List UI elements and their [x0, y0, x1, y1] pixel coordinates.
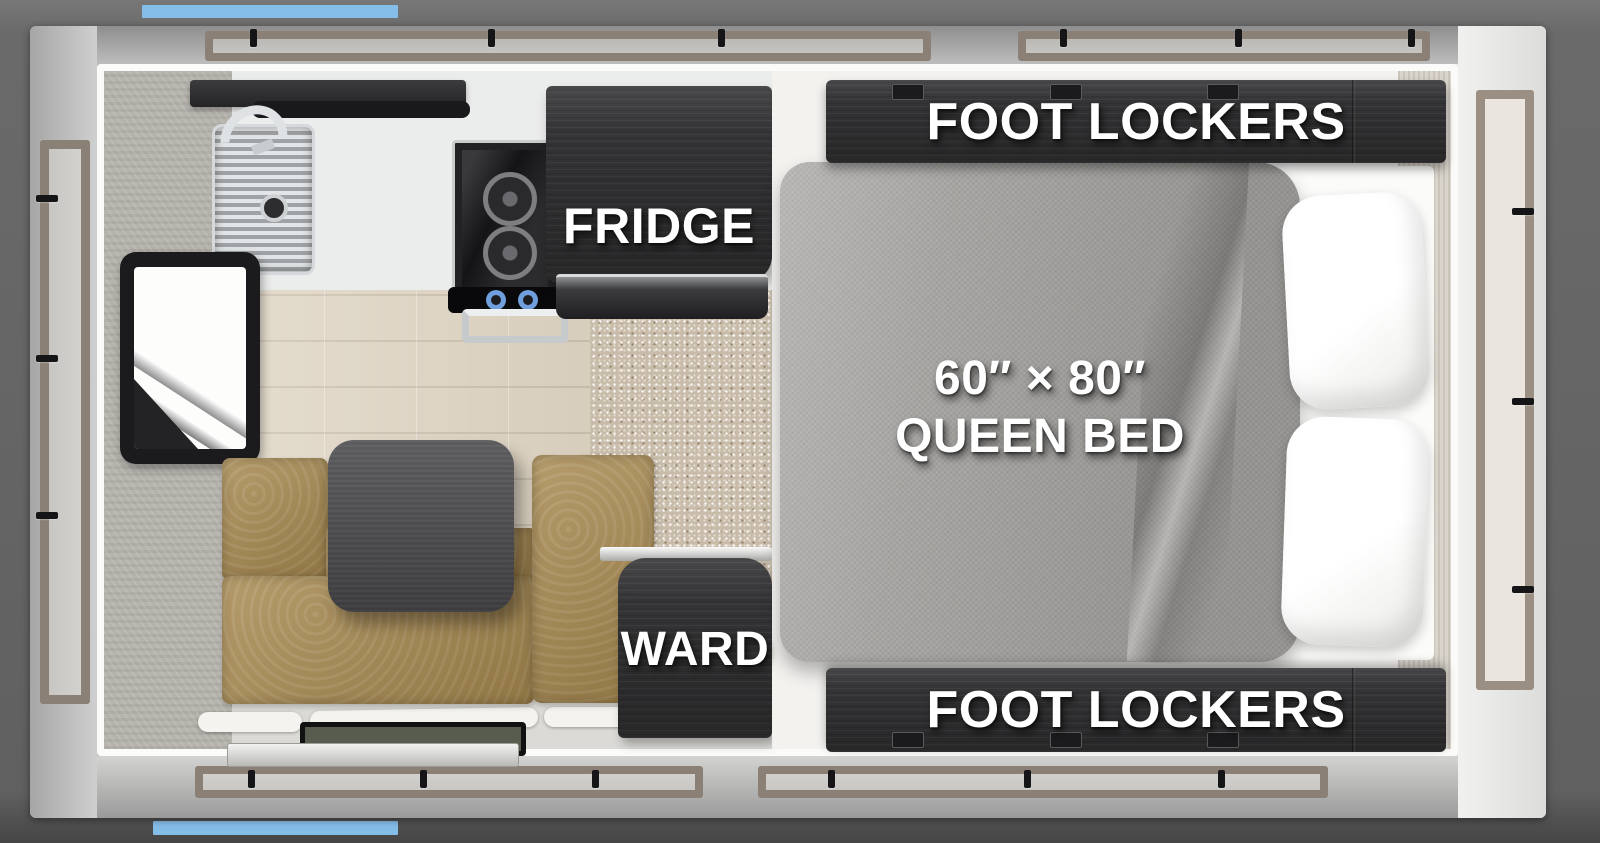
window-clip [420, 770, 427, 788]
window-clip [1512, 586, 1534, 593]
window-clip [1235, 29, 1242, 47]
oven-handle [462, 309, 568, 343]
window-clip [828, 770, 835, 788]
bed-name-text: QUEEN BED [895, 408, 1185, 466]
bed-size-text: 60″ × 80″ [934, 350, 1146, 408]
floorplan-canvas: FOOT LOCKERS FOOT LOCKERS FRIDGE WARD 60… [0, 0, 1600, 843]
oven-knob [518, 290, 538, 310]
window-clip [248, 770, 255, 788]
fridge-text: FRIDGE [563, 197, 755, 255]
window-clip [1218, 770, 1225, 788]
burner [483, 226, 537, 280]
window-clip [36, 355, 58, 362]
pillow [1280, 190, 1431, 411]
window-clip [1512, 208, 1534, 215]
foot-lockers-bottom-label: FOOT LOCKERS [826, 668, 1446, 752]
window-clip [250, 29, 257, 47]
window-clip [488, 29, 495, 47]
entry-step [227, 743, 519, 767]
oven-knob [486, 290, 506, 310]
bottom-window-frame-left [195, 766, 703, 798]
sink-drain [260, 194, 288, 222]
window-clip [1512, 398, 1534, 405]
window-clip [1060, 29, 1067, 47]
top-window-frame-right [1018, 31, 1430, 61]
tv-corner-shadow [134, 379, 198, 449]
top-window-frame-left [205, 31, 931, 61]
fridge-label: FRIDGE [546, 196, 772, 256]
ward-label: WARD [612, 620, 778, 678]
dinette-table [328, 440, 514, 612]
floor-mat [198, 712, 302, 732]
accent-bar-bottom [153, 821, 398, 835]
right-window-frame [1476, 90, 1534, 690]
pillow [1280, 416, 1430, 649]
window-clip [1408, 29, 1415, 47]
window-clip [592, 770, 599, 788]
fridge-drawer [556, 274, 768, 319]
accent-bar-top [142, 5, 398, 18]
foot-lockers-top-text: FOOT LOCKERS [926, 92, 1345, 152]
foot-lockers-bottom-text: FOOT LOCKERS [926, 680, 1345, 740]
dinette-bench-back [222, 458, 328, 578]
tv-screen [134, 267, 246, 449]
window-clip [1024, 770, 1031, 788]
bed-label: 60″ × 80″ QUEEN BED [880, 350, 1200, 466]
burner [483, 172, 537, 226]
window-clip [36, 195, 58, 202]
bottom-window-frame-right [758, 766, 1328, 798]
range-hood [252, 101, 470, 118]
window-clip [718, 29, 725, 47]
left-window-frame [40, 140, 90, 704]
window-clip [36, 512, 58, 519]
ward-text: WARD [621, 622, 770, 677]
foot-lockers-top-label: FOOT LOCKERS [826, 80, 1446, 163]
